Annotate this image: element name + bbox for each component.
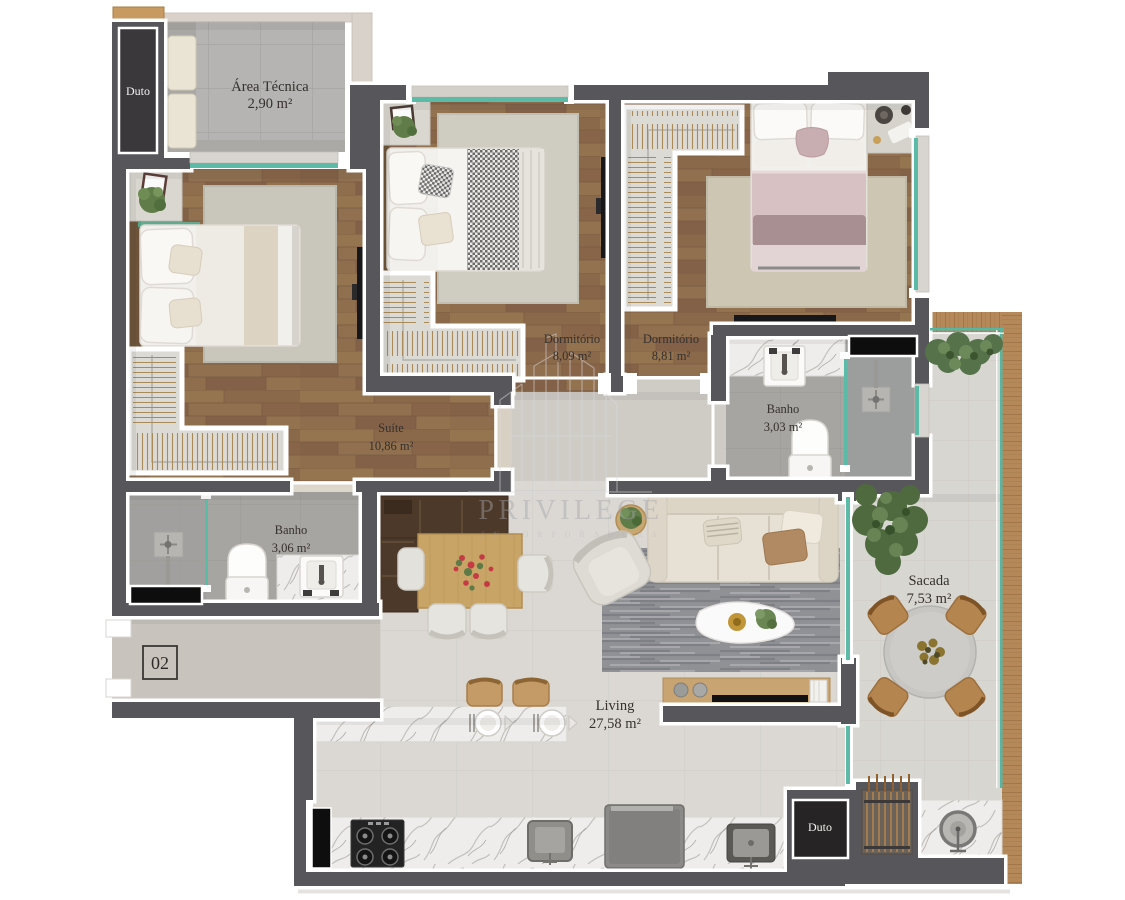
svg-text:Duto: Duto	[808, 820, 832, 834]
svg-text:7,53 m²: 7,53 m²	[907, 591, 952, 607]
svg-text:02: 02	[151, 653, 169, 673]
svg-text:Sacada: Sacada	[908, 573, 950, 589]
svg-text:2,90 m²: 2,90 m²	[248, 96, 293, 112]
svg-text:PRIVILEGE: PRIVILEGE	[478, 495, 663, 526]
svg-text:8,09 m²: 8,09 m²	[553, 349, 592, 363]
svg-text:Living: Living	[596, 698, 635, 714]
svg-text:27,58 m²: 27,58 m²	[589, 716, 642, 732]
svg-text:Área Técnica: Área Técnica	[231, 78, 309, 95]
svg-text:3,06 m²: 3,06 m²	[272, 541, 311, 555]
svg-text:Dormitório: Dormitório	[544, 332, 600, 346]
svg-text:Banho: Banho	[275, 523, 308, 537]
svg-text:8,81 m²: 8,81 m²	[652, 349, 691, 363]
svg-text:3,03 m²: 3,03 m²	[764, 420, 803, 434]
svg-text:10,86 m²: 10,86 m²	[369, 439, 414, 453]
svg-text:Suíte: Suíte	[378, 421, 404, 435]
svg-text:Dormitório: Dormitório	[643, 332, 699, 346]
svg-text:I N C O R P O R A D O R A: I N C O R P O R A D O R A	[482, 530, 661, 539]
svg-text:Duto: Duto	[126, 84, 150, 98]
svg-text:Banho: Banho	[767, 402, 800, 416]
